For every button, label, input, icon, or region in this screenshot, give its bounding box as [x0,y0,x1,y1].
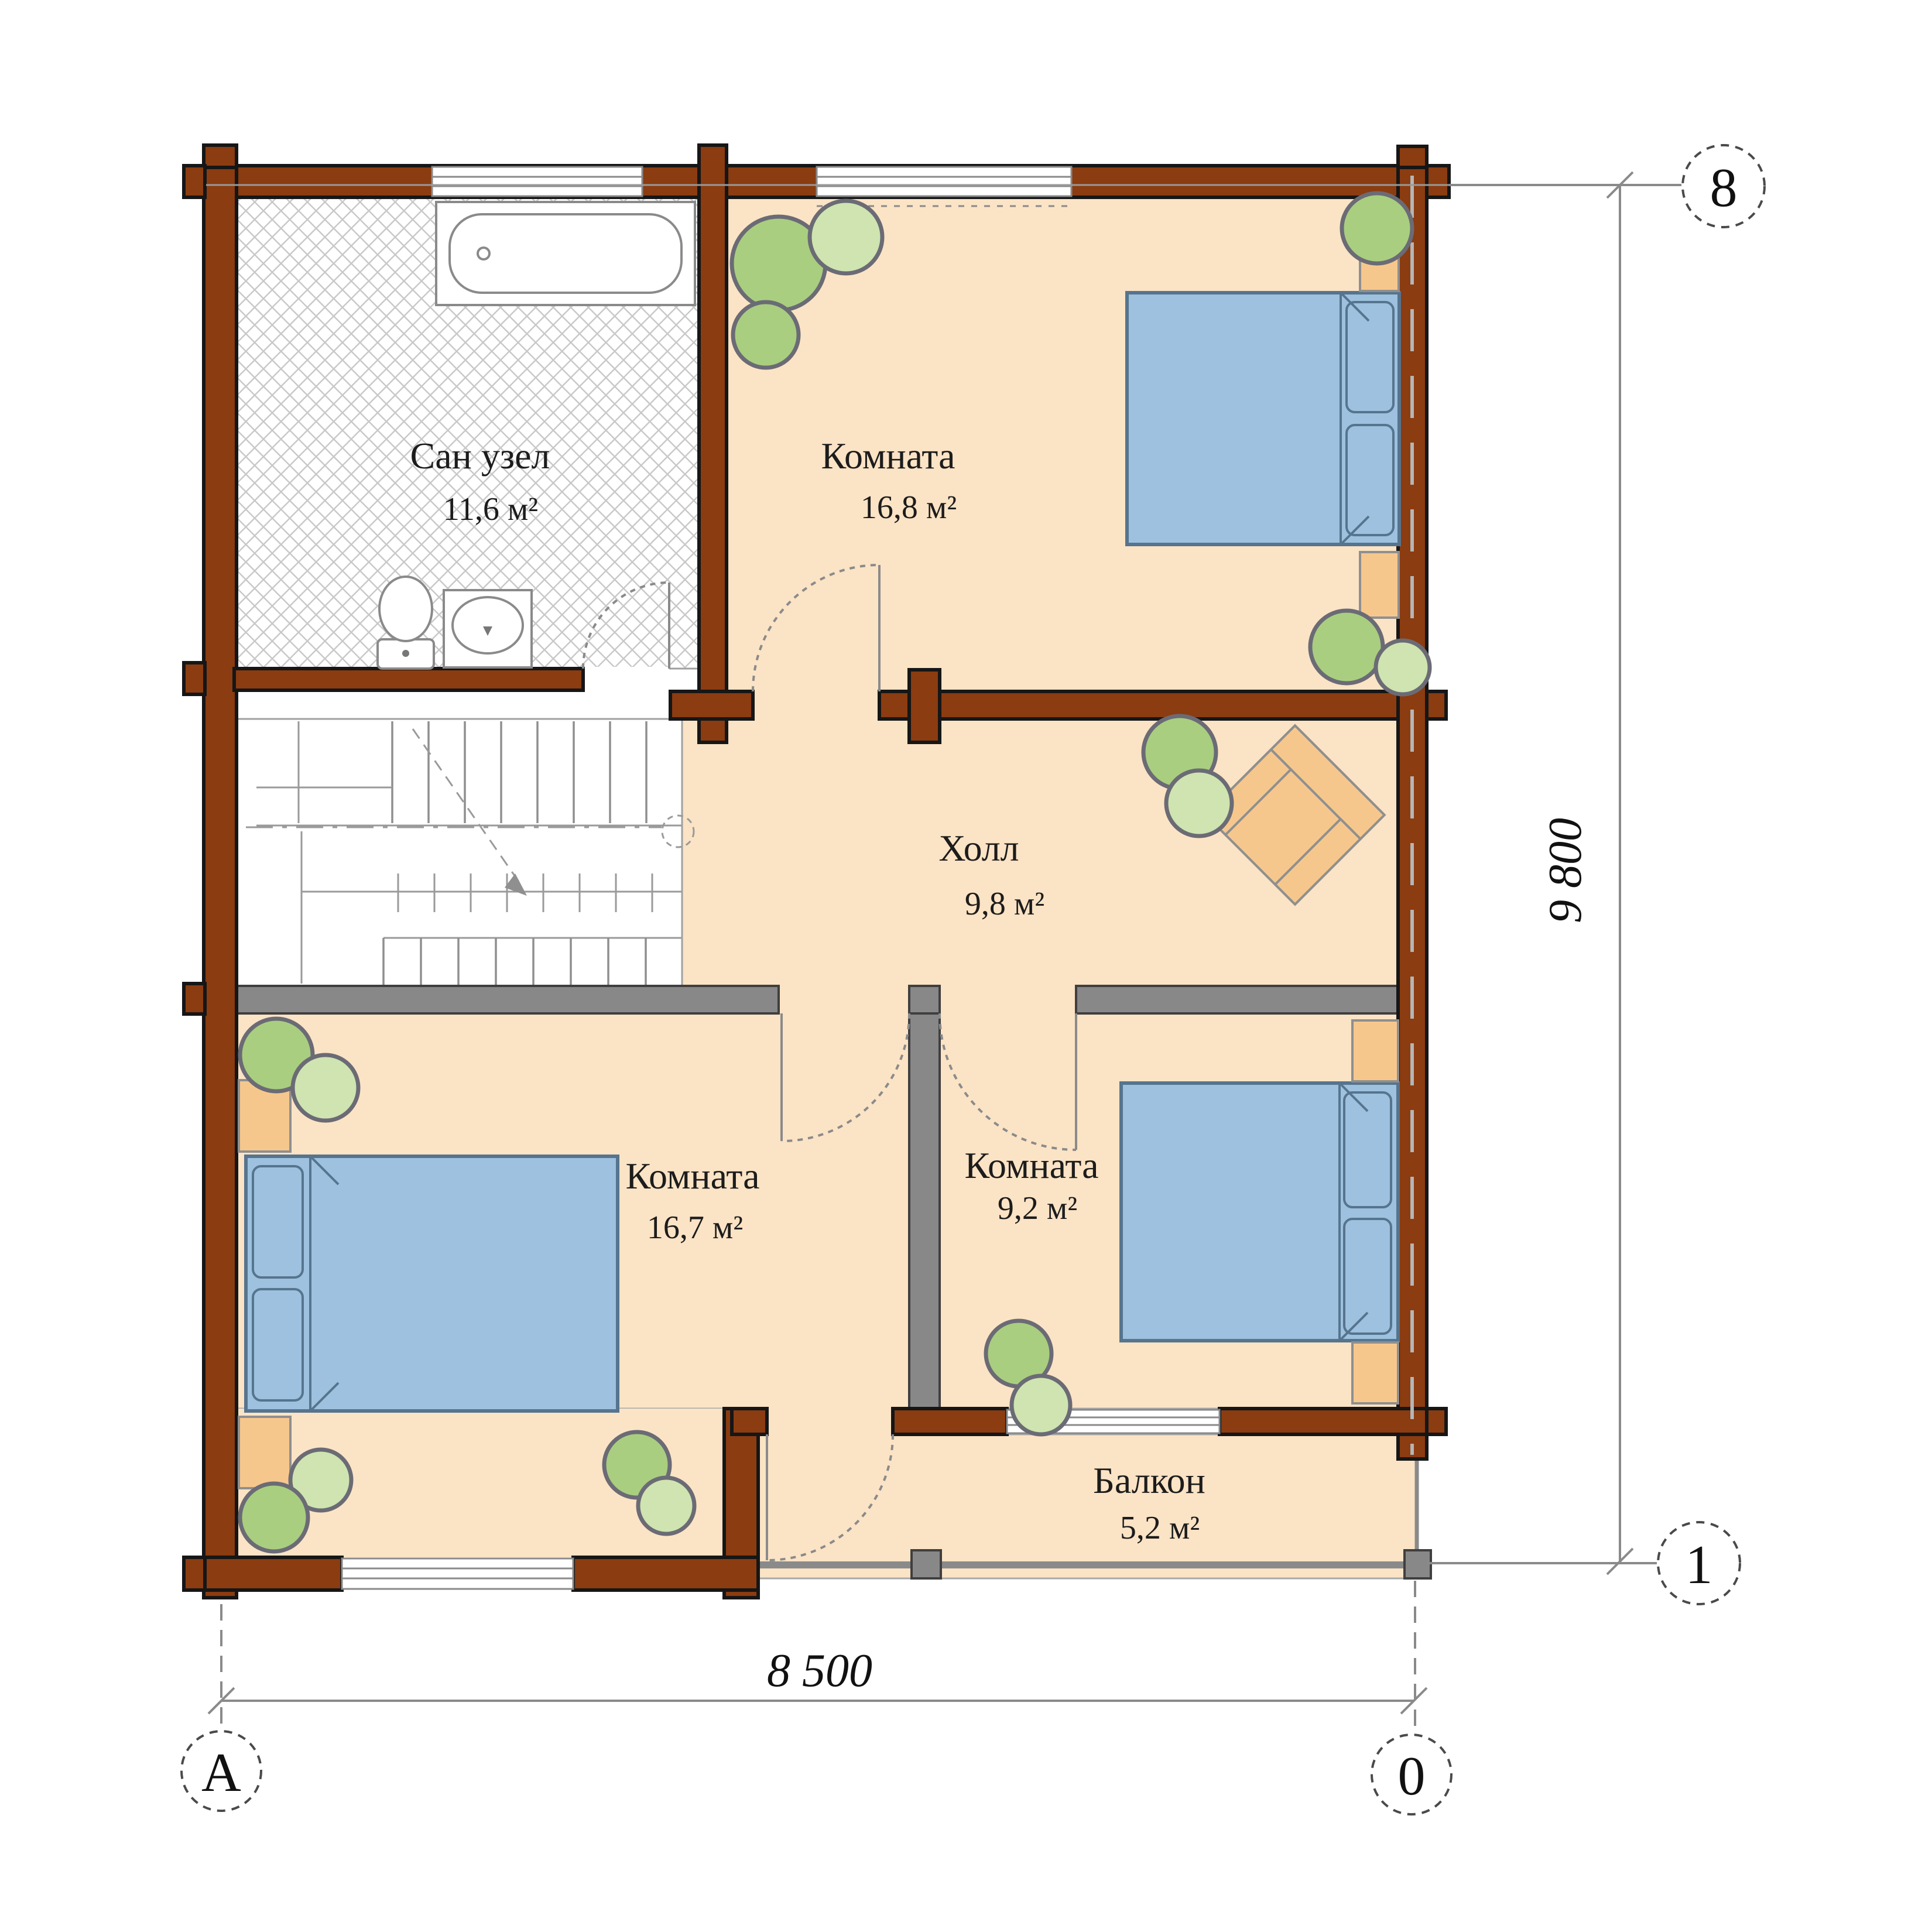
axis-label-8: 8 [1710,157,1738,218]
wall-bathroom-divider [699,145,727,742]
window-bathroom [432,167,642,196]
bathtub [436,202,695,305]
wall-bottom-seg2 [573,1557,758,1590]
hall-bottom-wall-left [237,986,779,1013]
wall-hall-top-right [879,691,1398,719]
balcony-floor [758,1434,1417,1578]
room-area-balcony: 5,2 м² [1120,1510,1200,1546]
bed-bedroom-left [246,1156,618,1411]
dim-height-label: 9 800 [1540,818,1591,923]
wall-hall-top-left [670,691,753,719]
balcony-post-middle [912,1550,941,1578]
dim-width-label: 8 500 [767,1645,872,1697]
hall-bottom-wall-right [1076,986,1398,1013]
plant [810,201,882,273]
wall-left [204,166,237,1598]
balcony-railing [758,1561,1427,1568]
bed-bedroom-top [1127,293,1399,544]
plant [638,1478,694,1534]
axis-label-0: 0 [1398,1746,1426,1807]
wall-balcony-seg1 [732,1409,767,1434]
toilet [378,577,434,669]
axis-label-a: А [201,1742,241,1803]
wall-bottom-seg1 [204,1557,342,1590]
hall-bottom-wall-pillar [909,986,940,1013]
plant [1342,193,1412,263]
plant [1012,1376,1070,1434]
floor-plan: Сан узел 11,6 м² Комната 16,8 м² Холл 9,… [0,0,1932,1932]
bedroom-partition-wall [909,1013,940,1409]
room-label-bathroom: Сан узел [410,435,550,477]
room-label-bedroom-left: Комната [626,1155,760,1197]
plant [1376,640,1430,694]
wall-balcony-seg3 [1220,1409,1427,1434]
plant [240,1484,308,1551]
axis-label-1: 1 [1686,1534,1713,1595]
room-area-hall: 9,8 м² [965,886,1044,922]
wall-bathroom-bottom [234,669,583,690]
plant [293,1055,358,1121]
plant [1310,611,1383,683]
room-label-bedroom-top: Комната [821,435,955,477]
window-bedroom-left [342,1558,573,1589]
room-area-bathroom: 11,6 м² [443,491,538,527]
room-label-bedroom-right: Комната [965,1145,1099,1186]
sink [444,590,532,667]
plant [1166,770,1232,836]
wall-hall-top-notch [909,670,940,742]
nightstand [1352,1020,1398,1081]
plant [733,302,799,368]
room-area-bedroom-right: 9,2 м² [998,1190,1077,1227]
wall-top [204,166,1427,197]
nightstand [239,1417,290,1488]
room-label-balcony: Балкон [1093,1460,1205,1501]
bed-bedroom-right [1121,1083,1398,1341]
room-label-hall: Холл [938,827,1019,869]
room-area-bedroom-left: 16,7 м² [647,1210,743,1246]
nightstand [1360,552,1399,618]
nightstand [1352,1342,1398,1403]
room-area-bedroom-top: 16,8 м² [861,489,957,526]
wall-balcony-seg2 [893,1409,1007,1434]
